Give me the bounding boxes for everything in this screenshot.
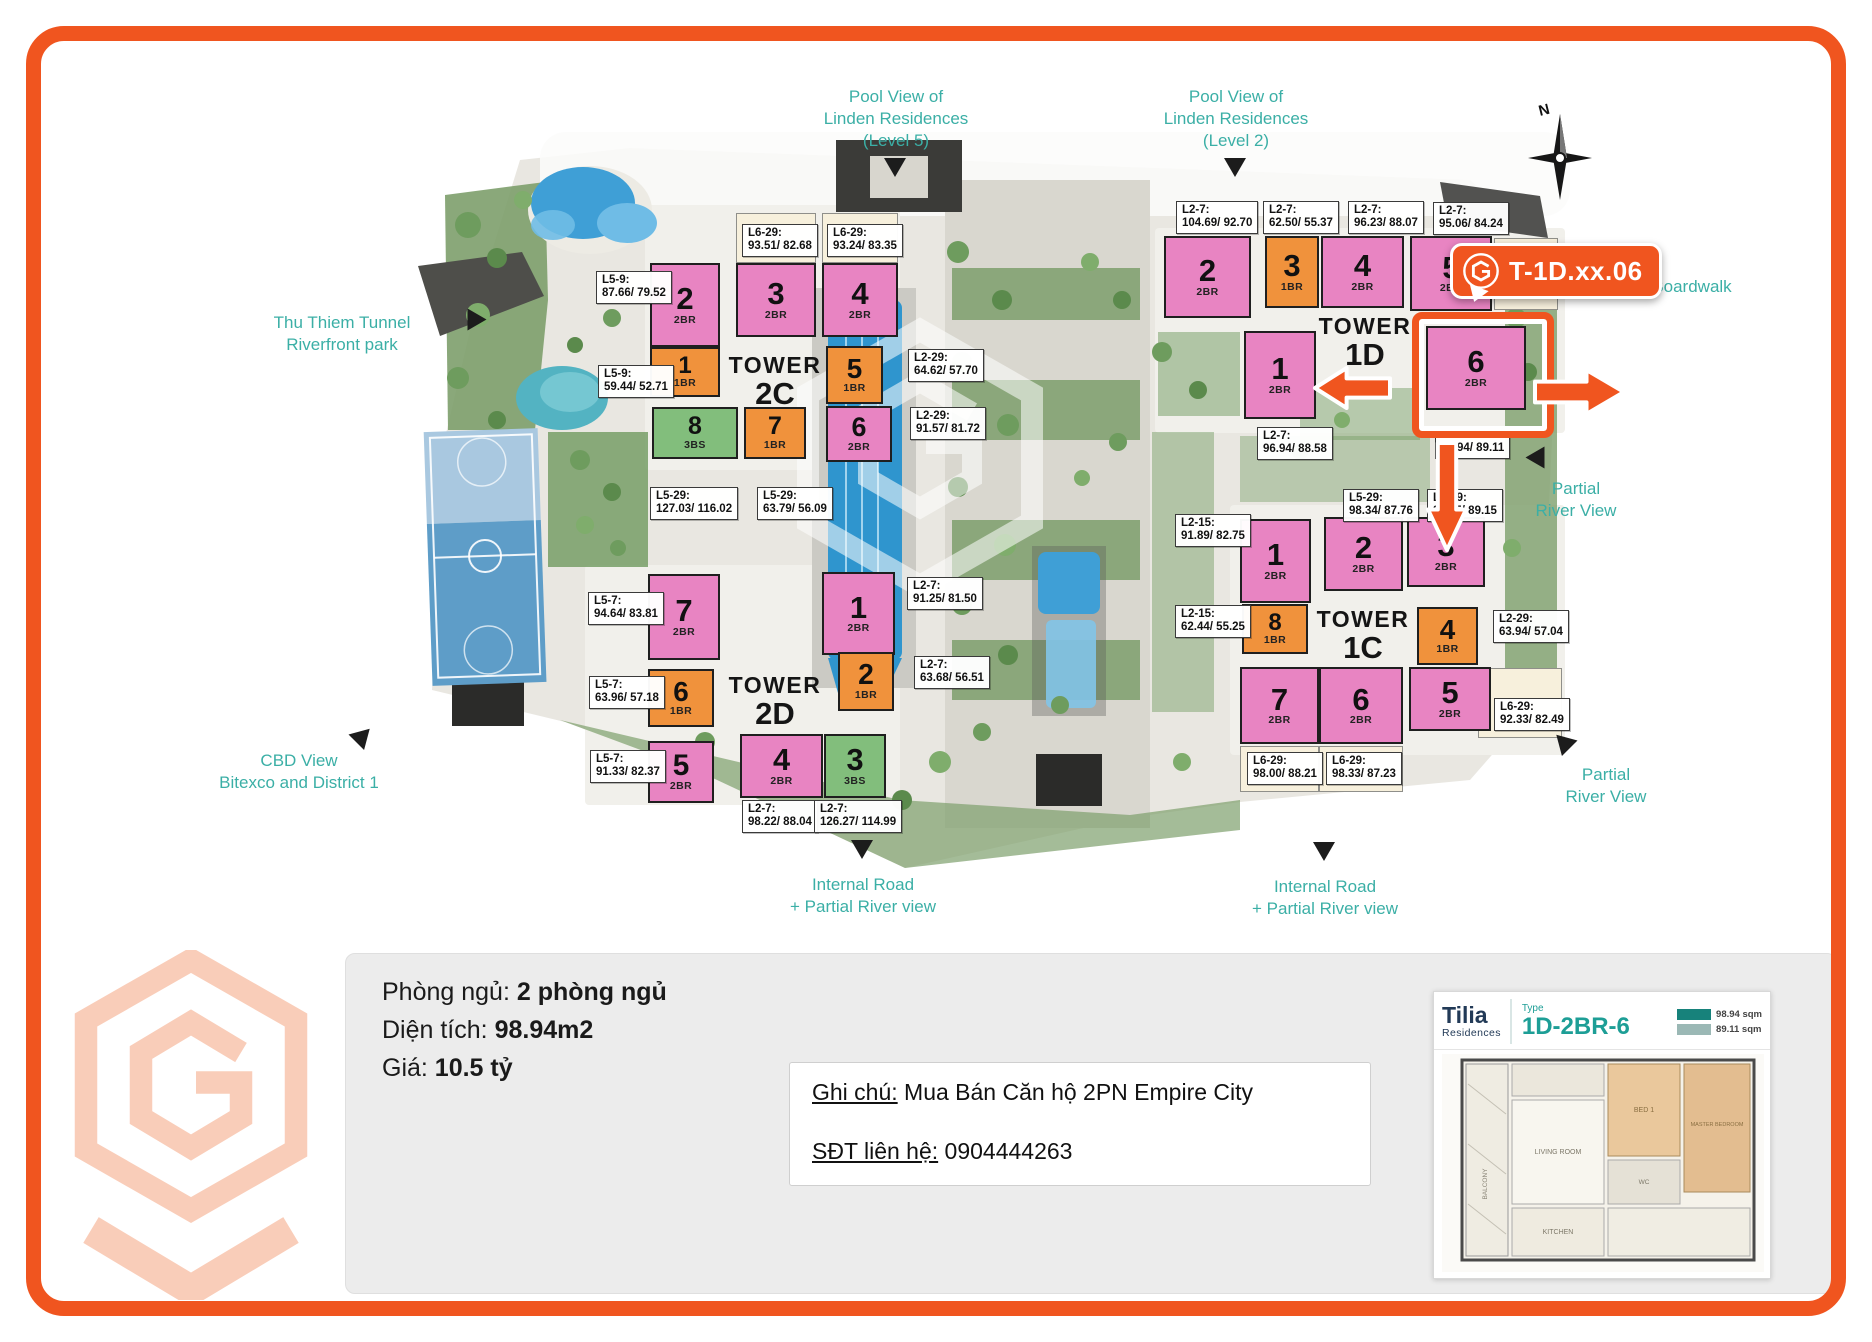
unit-type: 2BR	[1350, 714, 1372, 726]
unit-number: 3	[846, 745, 863, 774]
area-values: 96.23/ 88.07	[1354, 217, 1418, 230]
room-living: LIVING ROOM	[1535, 1149, 1582, 1156]
area-label: L5-7:91.33/ 82.37	[590, 750, 666, 783]
area-label: L5-7:94.64/ 83.81	[588, 592, 664, 625]
unit-type: 3BS	[684, 439, 706, 451]
area-label: L2-7:63.68/ 56.51	[914, 656, 990, 689]
unit-type-card: Tilia Residences Type 1D-2BR-6 98.94 sqm…	[1433, 991, 1771, 1279]
unit-type: 2BR	[849, 309, 871, 321]
area-values: 87.66/ 79.52	[602, 287, 666, 300]
unit-2d-2: 21BR	[838, 652, 894, 711]
area-label: L2-7:62.50/ 55.37	[1263, 201, 1339, 234]
area-label: L2-7:98.22/ 88.04	[742, 800, 818, 833]
area-values: 98.22/ 88.04	[748, 816, 812, 829]
bedrooms-row: Phòng ngủ: 2 phòng ngủ	[382, 978, 667, 1007]
unit-callout-badge: T-1D.xx.06	[1450, 243, 1662, 299]
room-kitchen: KITCHEN	[1543, 1229, 1574, 1236]
area-level-range: L5-29:	[1349, 492, 1413, 505]
area-label: L2-7:96.94/ 88.58	[1257, 427, 1333, 460]
pointer-arrow-left	[1313, 364, 1393, 412]
area-level-range: L6-29:	[1332, 755, 1396, 768]
area-label: L5-9:59.44/ 52.71	[598, 365, 674, 398]
tower-code: 2C	[705, 376, 845, 412]
unit-number: 2	[1355, 533, 1372, 562]
view-label-partial-river-view-1: Partial River View	[1456, 478, 1696, 522]
area-level-range: L5-9:	[604, 368, 668, 381]
area-label: L5-29:98.34/ 87.76	[1343, 489, 1419, 522]
area-level-range: L2-7:	[1182, 204, 1252, 217]
unit-number: 2	[1199, 256, 1216, 285]
area-label: L5-9:87.66/ 79.52	[596, 271, 672, 304]
area-values: 93.24/ 83.35	[833, 240, 897, 253]
unit-number: 4	[1354, 251, 1371, 280]
note-box: Ghi chú: Mua Bán Căn hộ 2PN Empire City …	[789, 1062, 1371, 1186]
listing-summary: Phòng ngủ: 2 phòng ngủ Diện tích: 98.94m…	[382, 978, 667, 1092]
unit-type: 1BR	[1436, 643, 1458, 655]
unit-number: 7	[1271, 685, 1288, 714]
area-label: L6-29:93.51/ 82.68	[742, 224, 818, 257]
unit-number: 6	[852, 415, 867, 441]
unit-type: 1BR	[843, 382, 865, 394]
unit-type: 2BR	[670, 780, 692, 792]
unit-type: 1BR	[764, 439, 786, 451]
area-values: 91.33/ 82.37	[596, 766, 660, 779]
area-values: 98.34/ 87.76	[1349, 505, 1413, 518]
area-values: 59.44/ 52.71	[604, 381, 668, 394]
direction-triangle	[1224, 158, 1246, 177]
unit-1c-6: 62BR	[1319, 667, 1403, 744]
area-level-range: L6-29:	[833, 227, 897, 240]
area-level-range: L5-7:	[594, 595, 658, 608]
area-level-range: L2-7:	[1439, 205, 1503, 218]
area-level-range: L6-29:	[1500, 701, 1564, 714]
phone-line: SĐT liên hệ: 0904444263	[812, 1138, 1348, 1165]
area-label: L2-7:91.25/ 81.50	[907, 577, 983, 610]
direction-triangle	[1526, 447, 1545, 469]
callout-unit-code: T-1D.xx.06	[1509, 256, 1643, 287]
unit-number: 7	[768, 415, 782, 439]
view-label-partial-river-view-2: Partial River View	[1486, 764, 1726, 808]
area-tag-dark	[1677, 1009, 1711, 1020]
direction-triangle	[851, 840, 873, 859]
unit-number: 5	[847, 356, 862, 382]
card-areas: 98.94 sqm 89.11 sqm	[1677, 999, 1762, 1044]
area-level-range: L2-7:	[1263, 430, 1327, 443]
area-level-range: L5-7:	[595, 679, 659, 692]
area-level-range: L2-7:	[920, 659, 984, 672]
area-tag-light	[1677, 1024, 1711, 1035]
unit-number: 5	[1441, 678, 1458, 707]
area-values: 98.33/ 87.23	[1332, 768, 1396, 781]
area-values: 91.25/ 81.50	[913, 593, 977, 606]
tower-label-1c: TOWER1C	[1293, 606, 1433, 666]
unit-number: 3	[767, 279, 784, 308]
area-values: 62.50/ 55.37	[1269, 217, 1333, 230]
area-values: 95.06/ 84.24	[1439, 218, 1503, 231]
card-area-row: 98.94 sqm	[1677, 1009, 1762, 1020]
area-values: 127.03/ 116.02	[656, 503, 732, 516]
unit-number: 5	[673, 752, 690, 780]
tower-code: 2D	[705, 696, 845, 732]
area-label: L2-15:62.44/ 55.25	[1175, 605, 1251, 638]
price-value: 10.5 tỷ	[435, 1054, 513, 1082]
view-label-pool-view-level5: Pool View of Linden Residences (Level 5)	[776, 86, 1016, 152]
view-label-thu-thiem-tunnel: Thu Thiem Tunnel Riverfront park	[222, 312, 462, 356]
tower-code: 1C	[1293, 630, 1433, 666]
unit-2d-4: 42BR	[740, 734, 823, 798]
view-label-cbd-view: CBD View Bitexco and District 1	[179, 750, 419, 794]
card-header: Tilia Residences Type 1D-2BR-6 98.94 sqm…	[1434, 992, 1770, 1050]
compass-north-label: N	[1537, 101, 1552, 120]
unit-type: 2BR	[1196, 286, 1218, 298]
room-bed1: BED 1	[1634, 1107, 1654, 1114]
tower-word: TOWER	[705, 352, 845, 379]
unit-type: 2BR	[673, 626, 695, 638]
unit-1d-3: 31BR	[1265, 236, 1319, 308]
area-values: 63.68/ 56.51	[920, 672, 984, 685]
unit-type: 1BR	[1281, 281, 1303, 293]
unit-number: 4	[851, 279, 868, 308]
price-label: Giá:	[382, 1054, 435, 1082]
unit-type: 2BR	[765, 309, 787, 321]
area-value: 98.94m2	[495, 1016, 594, 1044]
unit-type: 1BR	[855, 689, 877, 701]
unit-number: 2	[676, 284, 693, 313]
area-values: 64.62/ 57.70	[914, 365, 978, 378]
unit-type: 1BR	[674, 377, 696, 389]
unit-number: 1	[1271, 354, 1288, 383]
unit-number: 4	[1440, 617, 1455, 643]
area-level-range: L6-29:	[1253, 755, 1317, 768]
area-values: 91.89/ 82.75	[1181, 530, 1245, 543]
unit-2c-3: 32BR	[736, 263, 816, 337]
tower-word: TOWER	[705, 672, 845, 699]
unit-1d-4: 42BR	[1321, 236, 1404, 308]
area-level-range: L2-7:	[820, 803, 896, 816]
area-label: L6-29:98.33/ 87.23	[1326, 752, 1402, 785]
area-label: L2-7:126.27/ 114.99	[814, 800, 902, 833]
unit-type: 2BR	[848, 441, 870, 453]
unit-type: 2BR	[1264, 570, 1286, 582]
unit-2c-7: 71BR	[744, 407, 806, 459]
area-label: L2-29:63.94/ 57.04	[1493, 610, 1569, 643]
unit-number: 3	[1283, 251, 1300, 280]
area-level-range: L2-7:	[748, 803, 812, 816]
area-level-range: L2-7:	[913, 580, 977, 593]
card-brand: Tilia Residences	[1442, 999, 1501, 1044]
area-label: L2-29:64.62/ 57.70	[908, 349, 984, 382]
unit-type: 2BR	[1269, 384, 1291, 396]
area-values: 104.69/ 92.70	[1182, 217, 1252, 230]
area-label: L2-7:95.06/ 84.24	[1433, 202, 1509, 235]
tower-label-2c: TOWER2C	[705, 352, 845, 412]
card-type-value: 1D-2BR-6	[1522, 1014, 1630, 1039]
unit-number: 1	[850, 593, 867, 622]
tower-word: TOWER	[1293, 606, 1433, 633]
flyer-page: N T-1D.xx.06 22BR32BR42BR11BR51BR83BS71B…	[0, 0, 1872, 1342]
room-master: MASTER BEDROOM	[1691, 1122, 1744, 1128]
area-level-range: L5-29:	[656, 490, 732, 503]
area-values: 94.64/ 83.81	[594, 608, 658, 621]
area-label: L6-29:93.24/ 83.35	[827, 224, 903, 257]
unit-type: 2BR	[770, 775, 792, 787]
note-label: Ghi chú:	[812, 1079, 898, 1105]
area-level-range: L2-7:	[1354, 204, 1418, 217]
tower-label-2d: TOWER2D	[705, 672, 845, 732]
unit-type: 2BR	[1351, 281, 1373, 293]
unit-number: 7	[675, 596, 692, 625]
unit-2c-6: 62BR	[826, 406, 892, 462]
price-row: Giá: 10.5 tỷ	[382, 1054, 667, 1083]
area-values: 91.57/ 81.72	[916, 423, 980, 436]
bedrooms-label: Phòng ngủ:	[382, 978, 517, 1006]
area-label: L5-29:127.03/ 116.02	[650, 487, 738, 520]
area-level-range: L5-9:	[602, 274, 666, 287]
unit-type: 2BR	[1268, 714, 1290, 726]
unit-number: 2	[858, 662, 874, 689]
direction-triangle	[884, 158, 906, 177]
unit-type: 1BR	[1264, 634, 1286, 646]
area-level-range: L2-15:	[1181, 517, 1245, 530]
area-values: 96.94/ 88.58	[1263, 443, 1327, 456]
unit-2d-1: 12BR	[822, 572, 895, 655]
unit-1d-2: 22BR	[1164, 236, 1251, 318]
area-label: L6-29:98.00/ 88.21	[1247, 752, 1323, 785]
area-label: L2-15:91.89/ 82.75	[1175, 514, 1251, 547]
area-label: L2-7:96.23/ 88.07	[1348, 201, 1424, 234]
gross-area-value: 98.94 sqm	[1716, 1009, 1762, 1020]
unit-number: 8	[1268, 612, 1281, 635]
area-values: 93.51/ 82.68	[748, 240, 812, 253]
area-values: 92.33/ 82.49	[1500, 714, 1564, 727]
unit-2d-3: 33BS	[824, 734, 886, 798]
note-text: Mua Bán Căn hộ 2PN Empire City	[898, 1079, 1253, 1105]
unit-type: 2BR	[847, 622, 869, 634]
area-level-range: L2-15:	[1181, 608, 1245, 621]
phone-number: 0904444263	[938, 1138, 1072, 1164]
direction-triangle	[1313, 842, 1335, 861]
room-balcony: BALCONY	[1482, 1168, 1489, 1200]
area-values: 62.44/ 55.25	[1181, 621, 1245, 634]
card-type: Type 1D-2BR-6	[1510, 999, 1630, 1044]
area-values: 126.27/ 114.99	[820, 816, 896, 829]
brand-logo-icon	[1461, 251, 1501, 291]
area-label: L6-29:92.33/ 82.49	[1494, 698, 1570, 731]
area-row: Diện tích: 98.94m2	[382, 1016, 667, 1045]
unit-number: 6	[673, 679, 688, 705]
unit-1c-5: 52BR	[1409, 667, 1491, 731]
unit-1c-7: 72BR	[1240, 667, 1319, 744]
area-values: 63.79/ 56.09	[763, 503, 827, 516]
card-area-row: 89.11 sqm	[1677, 1024, 1762, 1035]
area-values: 63.96/ 57.18	[595, 692, 659, 705]
unit-type: 3BS	[844, 775, 866, 787]
unit-type: 2BR	[674, 314, 696, 326]
card-brand-sub: Residences	[1442, 1027, 1501, 1039]
unit-type: 2BR	[1435, 561, 1457, 573]
unit-number: 4	[773, 745, 790, 774]
view-label-internal-road-2: Internal Road + Partial River view	[1205, 876, 1445, 920]
unit-number: 8	[688, 415, 702, 439]
view-label-pool-view-level2: Pool View of Linden Residences (Level 2)	[1116, 86, 1356, 152]
brand-watermark-logo	[66, 950, 316, 1300]
area-level-range: L2-7:	[1269, 204, 1333, 217]
direction-triangle	[468, 309, 487, 331]
area-label: L2-29:91.57/ 81.72	[910, 407, 986, 440]
area-level-range: L5-7:	[596, 753, 660, 766]
area-label: L2-7:104.69/ 92.70	[1176, 201, 1258, 234]
bedrooms-value: 2 phòng ngủ	[517, 978, 667, 1006]
area-values: 63.94/ 57.04	[1499, 626, 1563, 639]
card-floorplan: BALCONY LIVING ROOM KITCHEN BED 1 MASTER…	[1442, 1054, 1764, 1272]
card-brand-name: Tilia	[1442, 1004, 1501, 1027]
unit-type: 2BR	[1439, 708, 1461, 720]
area-label: L5-7:63.96/ 57.18	[589, 676, 665, 709]
area-values: 98.00/ 88.21	[1253, 768, 1317, 781]
unit-type: 1BR	[670, 705, 692, 717]
pointer-arrow-down	[1424, 440, 1470, 552]
listing-info-panel: Phòng ngủ: 2 phòng ngủ Diện tích: 98.94m…	[345, 953, 1837, 1294]
compass-rose: N	[1516, 100, 1604, 204]
unit-number: 6	[1352, 685, 1369, 714]
pointer-arrow-right	[1532, 366, 1626, 418]
area-level-range: L5-29:	[763, 490, 827, 503]
unit-2c-4: 42BR	[822, 263, 898, 337]
area-label: L5-29:63.79/ 56.09	[757, 487, 833, 520]
note-line: Ghi chú: Mua Bán Căn hộ 2PN Empire City	[812, 1079, 1348, 1106]
unit-2c-8: 83BS	[652, 407, 738, 459]
net-area-value: 89.11 sqm	[1716, 1024, 1761, 1035]
unit-type: 2BR	[1352, 563, 1374, 575]
unit-1c-2: 22BR	[1324, 517, 1403, 591]
area-level-range: L6-29:	[748, 227, 812, 240]
area-label: Diện tích:	[382, 1016, 495, 1044]
view-label-internal-road-1: Internal Road + Partial River view	[743, 874, 983, 918]
unit-number: 1	[1267, 540, 1284, 569]
unit-number: 1	[678, 355, 691, 378]
area-level-range: L2-29:	[916, 410, 980, 423]
area-level-range: L2-29:	[1499, 613, 1563, 626]
phone-label: SĐT liên hệ:	[812, 1138, 938, 1164]
room-wc: WC	[1639, 1179, 1650, 1186]
area-level-range: L2-29:	[914, 352, 978, 365]
